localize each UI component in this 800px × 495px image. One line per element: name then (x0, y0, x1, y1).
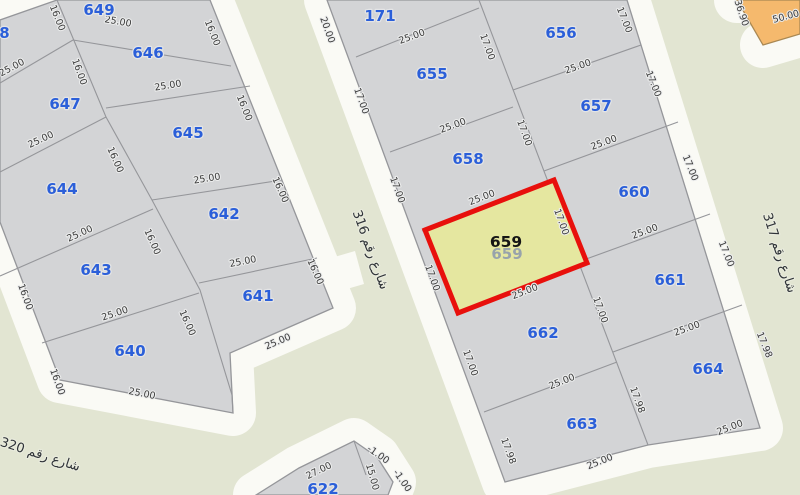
parcel-label-643[interactable]: 643 (80, 261, 111, 279)
parcel-label-660[interactable]: 660 (618, 183, 649, 201)
parcel-map-viewport: 25.0016.0016.0025.0016.0025.0016.0025.00… (0, 0, 800, 495)
parcel-label-646[interactable]: 646 (132, 44, 163, 62)
parcel-label-649[interactable]: 649 (83, 1, 114, 19)
parcel-label-640[interactable]: 640 (114, 342, 145, 360)
parcel-label-647[interactable]: 647 (49, 95, 80, 113)
parcel-label-657[interactable]: 657 (580, 97, 611, 115)
parcel-label-645[interactable]: 645 (172, 124, 203, 142)
parcel-label-661[interactable]: 661 (654, 271, 685, 289)
parcel-label-641[interactable]: 641 (242, 287, 273, 305)
parcel-label-656[interactable]: 656 (545, 24, 576, 42)
parcel-label-171[interactable]: 171 (364, 7, 395, 25)
parcel-label-655[interactable]: 655 (416, 65, 447, 83)
parcel-label-664[interactable]: 664 (692, 360, 723, 378)
parcel-label-658[interactable]: 658 (452, 150, 483, 168)
parcel-label-622[interactable]: 622 (307, 480, 338, 495)
parcel-label-662[interactable]: 662 (527, 324, 558, 342)
selected-parcel-label[interactable]: 659 (490, 233, 522, 251)
parcel-map: 25.0016.0016.0025.0016.0025.0016.0025.00… (0, 0, 800, 495)
parcel-label-644[interactable]: 644 (46, 180, 77, 198)
parcel-label-648[interactable]: 648 (0, 24, 10, 42)
parcel-label-642[interactable]: 642 (208, 205, 239, 223)
parcel-label-663[interactable]: 663 (566, 415, 597, 433)
